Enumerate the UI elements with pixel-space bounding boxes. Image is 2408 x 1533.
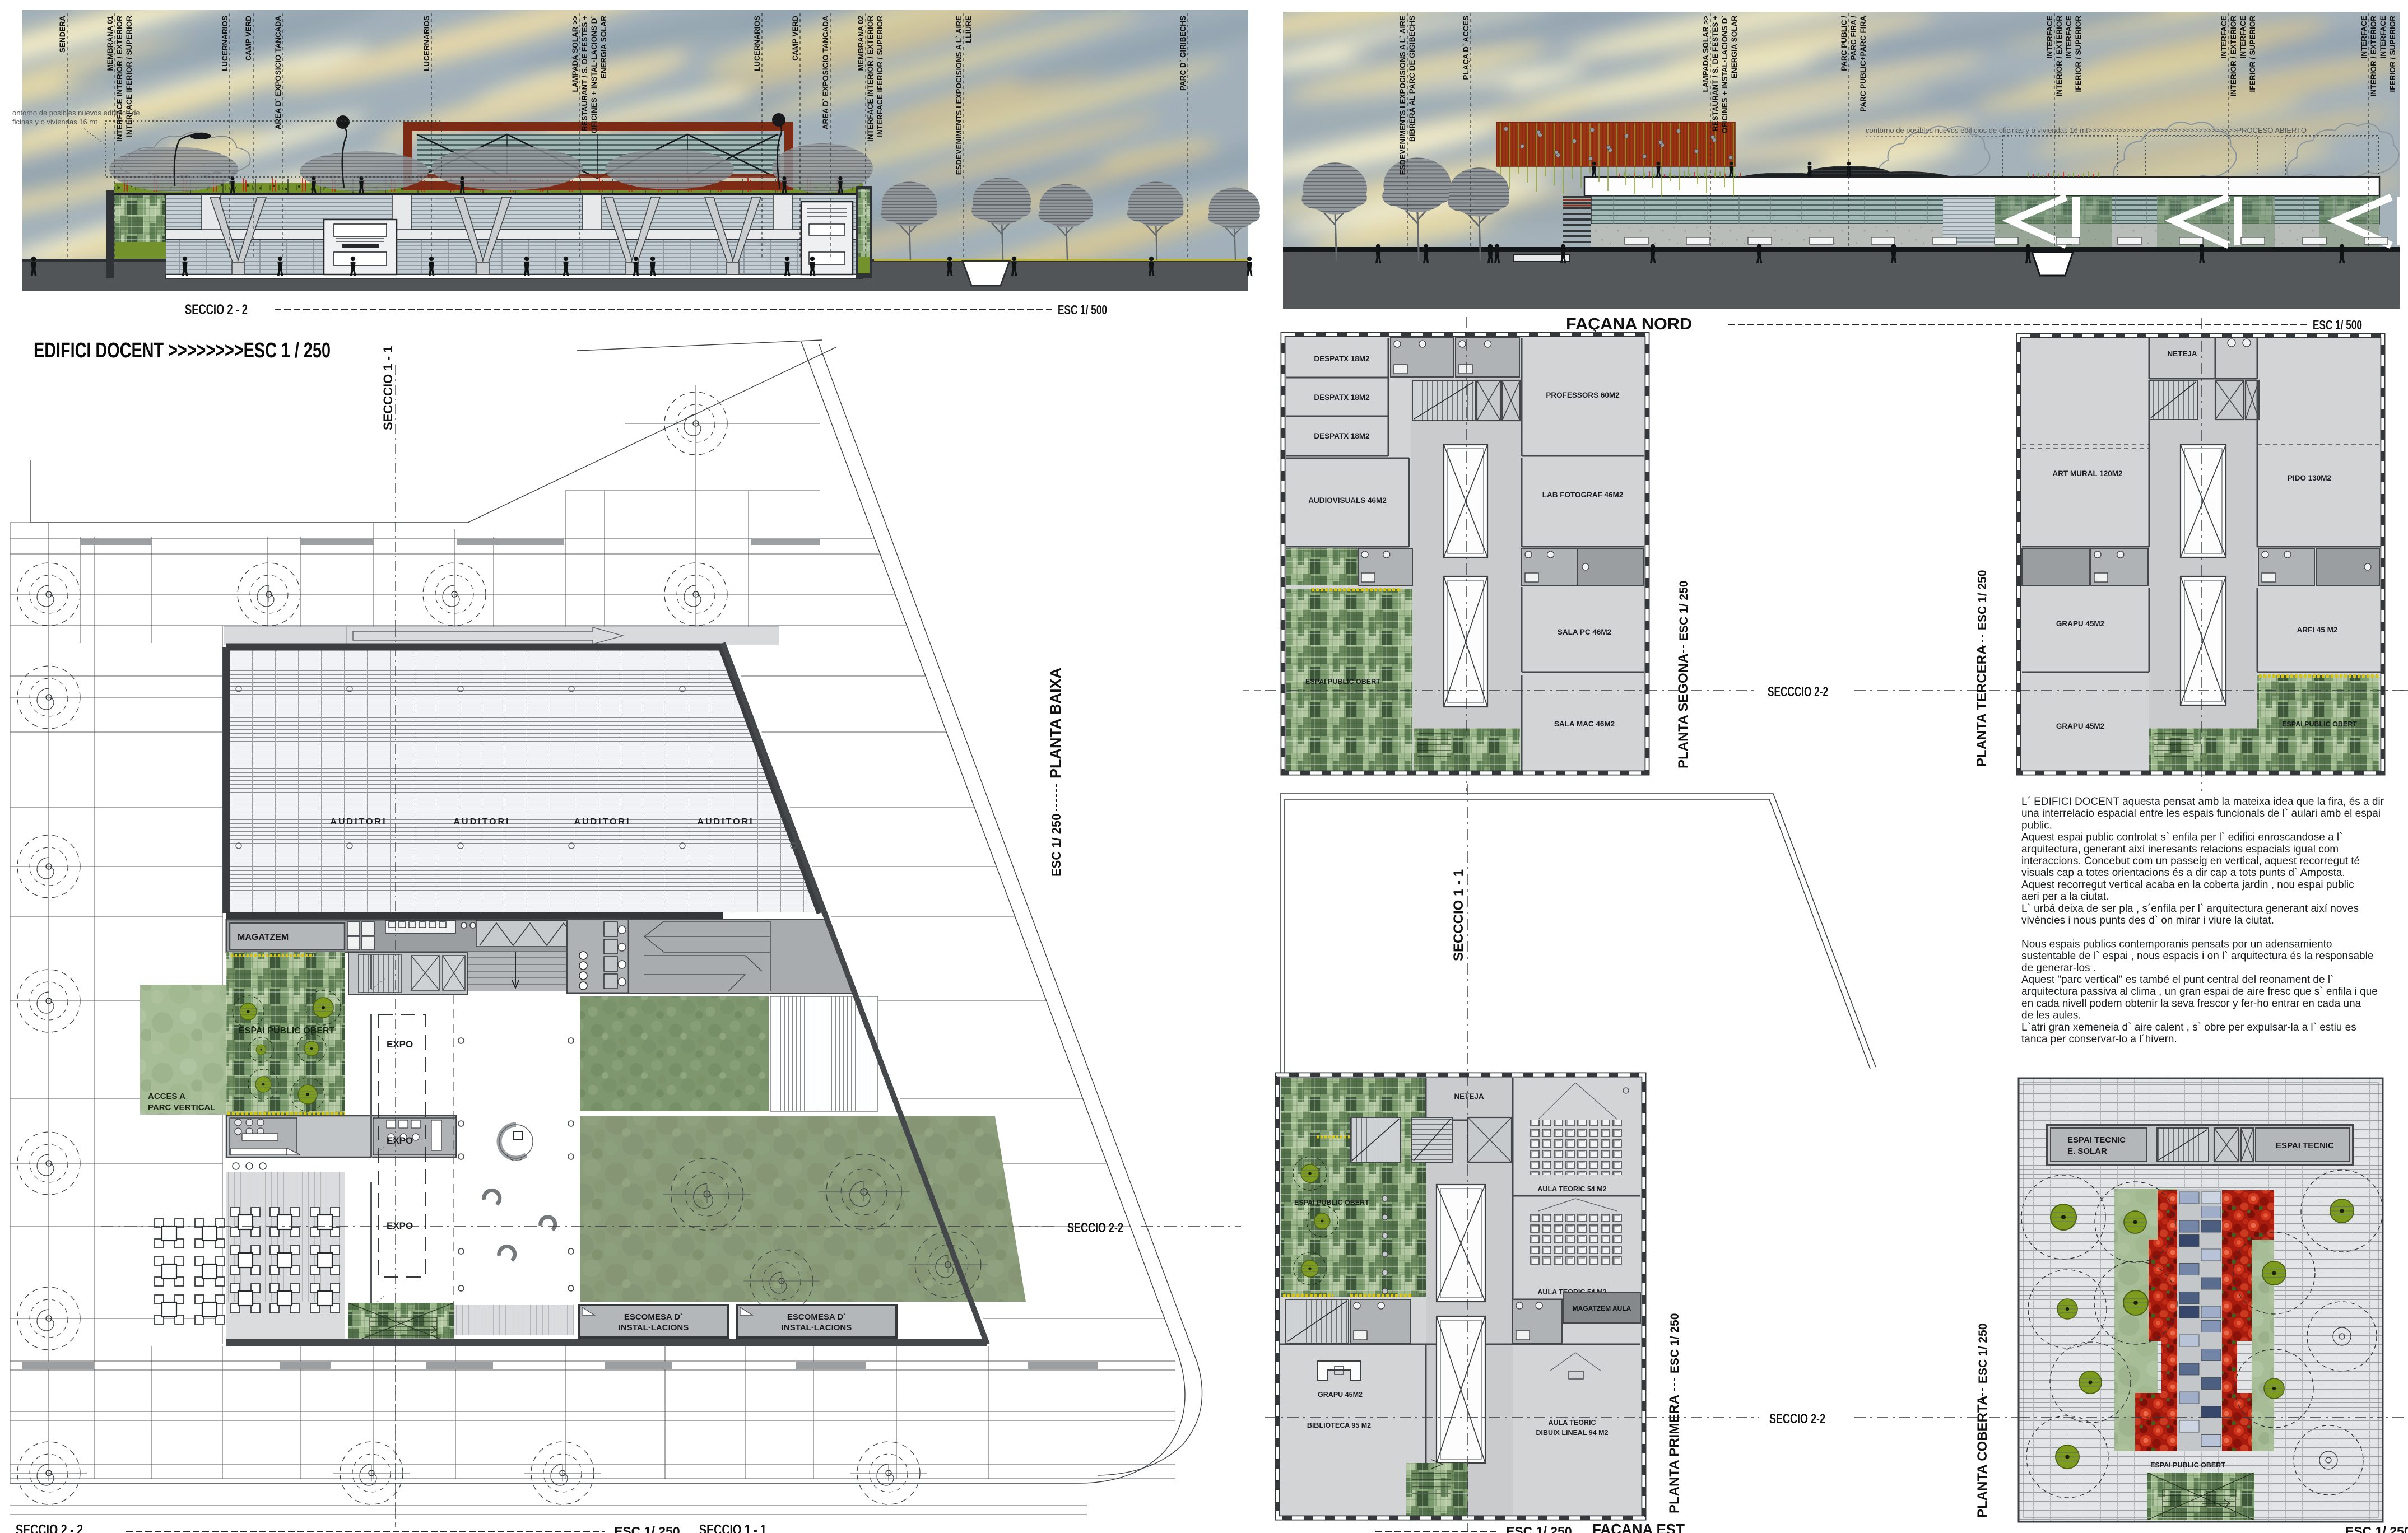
svg-text:PLANTA SEGONA: PLANTA SEGONA xyxy=(1676,654,1691,768)
svg-text:BIBLIOTECA 95 M2: BIBLIOTECA 95 M2 xyxy=(1307,1422,1371,1429)
svg-text:DIBUIX LINEAL 94 M2: DIBUIX LINEAL 94 M2 xyxy=(1536,1429,1609,1437)
svg-text:IFERIOR / SUPERIOR: IFERIOR / SUPERIOR xyxy=(2388,16,2397,92)
svg-text:ESDEVENIMENTS I EXPOCISIONS A: ESDEVENIMENTS I EXPOCISIONS A L` AIRE xyxy=(955,16,963,175)
svg-text:PLAÇA D` ACCES: PLAÇA D` ACCES xyxy=(1462,16,1470,80)
svg-text:L` urbá deixa de ser pla , s´e: L` urbá deixa de ser pla , s´enfila per … xyxy=(2021,903,2359,915)
svg-text:INTERIOR / EXTERIOR: INTERIOR / EXTERIOR xyxy=(2229,16,2238,97)
svg-text:AREA D` EXPOSICIO TANCADA: AREA D` EXPOSICIO TANCADA xyxy=(821,16,830,130)
svg-text:ESC 1/ 250: ESC 1/ 250 xyxy=(1668,1313,1681,1373)
svg-text:EXPO: EXPO xyxy=(387,1135,413,1146)
svg-text:ESPAI PUBLIC OBERT: ESPAI PUBLIC OBERT xyxy=(1305,678,1380,686)
svg-text:ARFI 45 M2: ARFI 45 M2 xyxy=(2297,626,2338,634)
svg-text:DESPATX 18M2: DESPATX 18M2 xyxy=(1314,355,1369,363)
svg-text:SECCIO 2 - 2: SECCIO 2 - 2 xyxy=(16,1521,83,1533)
svg-text:AUDIOVISUALS 46M2: AUDIOVISUALS 46M2 xyxy=(1308,496,1387,505)
svg-text:AUDITORI: AUDITORI xyxy=(574,817,630,827)
svg-text:ESPAI TECNIC: ESPAI TECNIC xyxy=(2067,1135,2126,1145)
svg-text:L´ EDIFICI DOCENT aquesta pens: L´ EDIFICI DOCENT aquesta pensat amb la … xyxy=(2021,796,2384,808)
svg-text:ESPAI PUBLIC OBERT: ESPAI PUBLIC OBERT xyxy=(239,1026,335,1036)
svg-text:LUCERNARIOS: LUCERNARIOS xyxy=(753,16,761,71)
svg-text:de les aules.: de les aules. xyxy=(2021,1010,2081,1022)
svg-text:CAMP VERD: CAMP VERD xyxy=(791,16,799,61)
svg-text:INTERFACE IFERIOR / SUPERIOR: INTERFACE IFERIOR / SUPERIOR xyxy=(876,16,884,137)
svg-text:PROFESSORS 60M2: PROFESSORS 60M2 xyxy=(1546,391,1619,399)
svg-text:RESTAURANT / S. DE FESTES +: RESTAURANT / S. DE FESTES + xyxy=(1711,16,1719,132)
svg-text:SECCCIO 1 - 1: SECCCIO 1 - 1 xyxy=(381,346,395,430)
svg-text:RESTAURANT / S. DE FESTES +: RESTAURANT / S. DE FESTES + xyxy=(580,16,589,132)
svg-text:ESC 1/ 500: ESC 1/ 500 xyxy=(1058,302,1107,317)
svg-text:de generar-los .: de generar-los . xyxy=(2021,962,2096,974)
svg-text:AULA TEORIC 54 M2: AULA TEORIC 54 M2 xyxy=(1537,1185,1606,1193)
svg-text:MAGATZEM AULA: MAGATZEM AULA xyxy=(1573,1304,1631,1312)
svg-text:ficinas y o viviendas 16 mt: ficinas y o viviendas 16 mt xyxy=(12,118,97,126)
svg-text:INSTAL·LACIONS: INSTAL·LACIONS xyxy=(619,1323,689,1332)
svg-text:ACCES A: ACCES A xyxy=(148,1092,185,1101)
svg-text:SECCIO 2 - 2: SECCIO 2 - 2 xyxy=(185,302,248,318)
svg-text:NETEJA: NETEJA xyxy=(2167,350,2197,358)
svg-text:Aquest "parc vertical" es tam: Aquest "parc vertical" es també el punt … xyxy=(2021,974,2333,986)
svg-text:AUDITORI: AUDITORI xyxy=(453,817,510,827)
svg-text:LAMPADA SOLAR >>: LAMPADA SOLAR >> xyxy=(571,16,579,92)
svg-text:PLANTA PRIMERA: PLANTA PRIMERA xyxy=(1667,1395,1682,1513)
svg-text:Aquest recorregut vertical aca: Aquest recorregut vertical acaba en la c… xyxy=(2021,879,2354,891)
svg-text:contorno de posibles nuevos ed: contorno de posibles nuevos edificios de… xyxy=(1866,126,2307,134)
svg-text:LLIURE: LLIURE xyxy=(964,16,973,43)
svg-text:LAB FOTOGRAF 46M2: LAB FOTOGRAF 46M2 xyxy=(1542,491,1624,499)
svg-text:PARC FIRA /: PARC FIRA / xyxy=(1849,16,1858,60)
svg-text:FAÇANA NORD: FAÇANA NORD xyxy=(1566,315,1692,333)
svg-text:ESPAI PUBLIC OBERT: ESPAI PUBLIC OBERT xyxy=(1294,1199,1369,1206)
svg-text:NETEJA: NETEJA xyxy=(1454,1092,1484,1101)
svg-text:BIBRERA AL PARC DE GIGIBECHS: BIBRERA AL PARC DE GIGIBECHS xyxy=(1408,16,1416,142)
svg-text:MAGATZEM: MAGATZEM xyxy=(238,933,289,942)
svg-text:DESPATX 18M2: DESPATX 18M2 xyxy=(1314,432,1369,440)
svg-text:INTERIOR / EXTERIOR: INTERIOR / EXTERIOR xyxy=(2055,16,2063,97)
svg-text:AREA D` EXPOSICIO TANCADA: AREA D` EXPOSICIO TANCADA xyxy=(274,16,282,130)
svg-text:SALA PC 46M2: SALA PC 46M2 xyxy=(1558,628,1611,636)
svg-text:SALA MAC 46M2: SALA MAC 46M2 xyxy=(1554,720,1615,728)
svg-text:ESC 1/ 500: ESC 1/ 500 xyxy=(2313,318,2362,332)
svg-text:ESC 1/ 250: ESC 1/ 250 xyxy=(1049,813,1063,877)
svg-text:SECCCIO 1 - 1: SECCCIO 1 - 1 xyxy=(1451,869,1466,961)
svg-text:LUCERNARIOS: LUCERNARIOS xyxy=(422,16,431,71)
svg-text:visuals cap a totes orientaci: visuals cap a totes orientacions és a di… xyxy=(2021,867,2345,879)
svg-text:ESDEVENIMENTS I EXPOCISIONS A: ESDEVENIMENTS I EXPOCISIONS A L` AIRE xyxy=(1398,16,1407,175)
svg-text:PIDO 130M2: PIDO 130M2 xyxy=(2288,474,2331,482)
svg-text:DESPATX 18M2: DESPATX 18M2 xyxy=(1314,393,1369,402)
svg-text:AULA TEORIC: AULA TEORIC xyxy=(1549,1419,1596,1427)
svg-text:MEMBRANA 02: MEMBRANA 02 xyxy=(857,16,865,71)
svg-text:tanca per conservar-lo a l´hiv: tanca per conservar-lo a l´hivern. xyxy=(2021,1033,2177,1045)
svg-text:ESC 1/ 250: ESC 1/ 250 xyxy=(1677,581,1690,641)
svg-text:aeri per a la ciutat.: aeri per a la ciutat. xyxy=(2021,891,2109,903)
svg-text:Aquest espai public controlat: Aquest espai public controlat s` enfila … xyxy=(2021,832,2342,844)
svg-text:INTERFACE: INTERFACE xyxy=(2239,16,2247,59)
svg-text:ESPAI PUBLIC OBERT: ESPAI PUBLIC OBERT xyxy=(2150,1461,2225,1469)
svg-text:ESCOMESA D`: ESCOMESA D` xyxy=(787,1312,846,1322)
svg-text:E. SOLAR: E. SOLAR xyxy=(2067,1147,2107,1156)
svg-text:una interrelacio espacial entr: una interrelacio espacial entre les espa… xyxy=(2021,808,2381,819)
svg-text:FAÇANA EST: FAÇANA EST xyxy=(1592,1521,1685,1533)
svg-text:arquitectura, generant així in: arquitectura, generant així ineresants r… xyxy=(2021,844,2339,855)
svg-text:ENERGIA SOLAR: ENERGIA SOLAR xyxy=(599,16,608,78)
svg-text:EDIFICI DOCENT >>>>>>>>ESC 1 /: EDIFICI DOCENT >>>>>>>>ESC 1 / 250 xyxy=(34,339,331,362)
svg-text:Nous espais publics contempora: Nous espais publics contemporanis pensat… xyxy=(2021,938,2332,950)
svg-text:interaccions. Concebut com un: interaccions. Concebut com un passeig en… xyxy=(2021,855,2360,867)
svg-text:ENERGIA SOLAR: ENERGIA SOLAR xyxy=(1730,16,1738,78)
svg-text:SECCIO 1 - 1: SECCIO 1 - 1 xyxy=(699,1521,766,1533)
svg-text:SECCCIO 2-2: SECCCIO 2-2 xyxy=(1768,684,1828,700)
svg-text:SECCIO 2-2: SECCIO 2-2 xyxy=(1769,1411,1825,1427)
svg-text:PARC VERTICAL: PARC VERTICAL xyxy=(148,1103,216,1112)
svg-text:INTERFACE IFERIOR / SUPERIOR: INTERFACE IFERIOR / SUPERIOR xyxy=(125,16,133,137)
svg-text:ESC 1/ 250: ESC 1/ 250 xyxy=(614,1524,680,1533)
svg-text:IFERIOR / SUPERIOR: IFERIOR / SUPERIOR xyxy=(2074,16,2082,92)
svg-text:INTERFACE: INTERFACE xyxy=(2360,16,2368,59)
svg-text:sustentable de l` espai , nous: sustentable de l` espai , nous espacis i… xyxy=(2021,950,2373,962)
svg-text:SECCIO 2-2: SECCIO 2-2 xyxy=(1067,1220,1123,1236)
svg-text:EXPO: EXPO xyxy=(387,1220,413,1231)
svg-text:PARC D` GIRIBECHS: PARC D` GIRIBECHS xyxy=(1179,16,1187,91)
svg-text:ESC 1/ 250: ESC 1/ 250 xyxy=(1506,1524,1572,1533)
svg-text:ESCOMESA D`: ESCOMESA D` xyxy=(624,1312,683,1322)
svg-text:PARC PUBLIC /: PARC PUBLIC / xyxy=(1840,16,1848,71)
svg-text:PARC PUBLIC+PARC FIRA: PARC PUBLIC+PARC FIRA xyxy=(1859,16,1867,112)
svg-text:ART MURAL 120M2: ART MURAL 120M2 xyxy=(2052,469,2122,478)
svg-text:GRAPU 45M2: GRAPU 45M2 xyxy=(2056,619,2104,628)
svg-text:L`atri gran xemeneia d` aire c: L`atri gran xemeneia d` aire calent , s`… xyxy=(2021,1022,2356,1033)
svg-text:CAMP VERD: CAMP VERD xyxy=(244,16,253,61)
svg-text:INTERFACE INTERIOR / EXTERIOR: INTERFACE INTERIOR / EXTERIOR xyxy=(115,16,124,142)
svg-text:GRAPU 45M2: GRAPU 45M2 xyxy=(2056,722,2104,730)
svg-text:ESC 1/ 250: ESC 1/ 250 xyxy=(2345,1524,2408,1533)
svg-text:PLANTA COBERTA: PLANTA COBERTA xyxy=(1975,1396,1990,1518)
svg-text:INTERFACE: INTERFACE xyxy=(2379,16,2387,59)
svg-text:ESPAI PUBLIC OBERT: ESPAI PUBLIC OBERT xyxy=(2282,720,2357,728)
svg-text:vivéncies i nous punts des d`: vivéncies i nous punts des d` on mirar i… xyxy=(2021,915,2274,926)
svg-text:SENDERA: SENDERA xyxy=(58,16,67,53)
svg-text:AUDITORI: AUDITORI xyxy=(330,817,387,827)
svg-text:AUDITORI: AUDITORI xyxy=(697,817,754,827)
svg-text:INTERFACE: INTERFACE xyxy=(2220,16,2228,59)
svg-text:PLANTA TERCERA: PLANTA TERCERA xyxy=(1974,645,1989,767)
svg-text:LUCERNARIOS: LUCERNARIOS xyxy=(221,16,229,71)
svg-text:OFICINES + INSTAL·LACIONS D`: OFICINES + INSTAL·LACIONS D` xyxy=(1721,16,1729,133)
svg-text:arquitectura passiva al clima: arquitectura passiva al clima , un gran … xyxy=(2021,986,2378,998)
svg-text:en cada nivell podem obtenir l: en cada nivell podem obtenir la seva fre… xyxy=(2021,998,2361,1009)
svg-text:ESPAI TECNIC: ESPAI TECNIC xyxy=(2276,1141,2334,1150)
svg-text:public.: public. xyxy=(2021,819,2052,831)
svg-text:GRAPU 45M2: GRAPU 45M2 xyxy=(1318,1391,1363,1399)
svg-text:INTERFACE INTERIOR / EXTERIOR: INTERFACE INTERIOR / EXTERIOR xyxy=(866,16,875,142)
svg-text:INSTAL·LACIONS: INSTAL·LACIONS xyxy=(782,1323,852,1332)
svg-text:ESC 1/ 250: ESC 1/ 250 xyxy=(1976,570,1989,630)
svg-text:INTERFACE: INTERFACE xyxy=(2065,16,2073,59)
svg-text:EXPO: EXPO xyxy=(387,1039,413,1050)
svg-text:PLANTA BAIXA: PLANTA BAIXA xyxy=(1047,668,1064,779)
svg-text:INTERIOR / EXTERIOR: INTERIOR / EXTERIOR xyxy=(2369,16,2378,97)
svg-text:OFICINES + INSTAL·LACIONS D`: OFICINES + INSTAL·LACIONS D` xyxy=(590,16,598,133)
svg-text:INTERFACE: INTERFACE xyxy=(2046,16,2054,59)
svg-text:MEMBRANA 01: MEMBRANA 01 xyxy=(106,16,114,71)
svg-text:IFERIOR / SUPERIOR: IFERIOR / SUPERIOR xyxy=(2248,16,2257,92)
svg-text:ESC 1/ 250: ESC 1/ 250 xyxy=(1977,1324,1989,1383)
svg-text:LAMPADA SOLAR >>: LAMPADA SOLAR >> xyxy=(1702,16,1710,92)
